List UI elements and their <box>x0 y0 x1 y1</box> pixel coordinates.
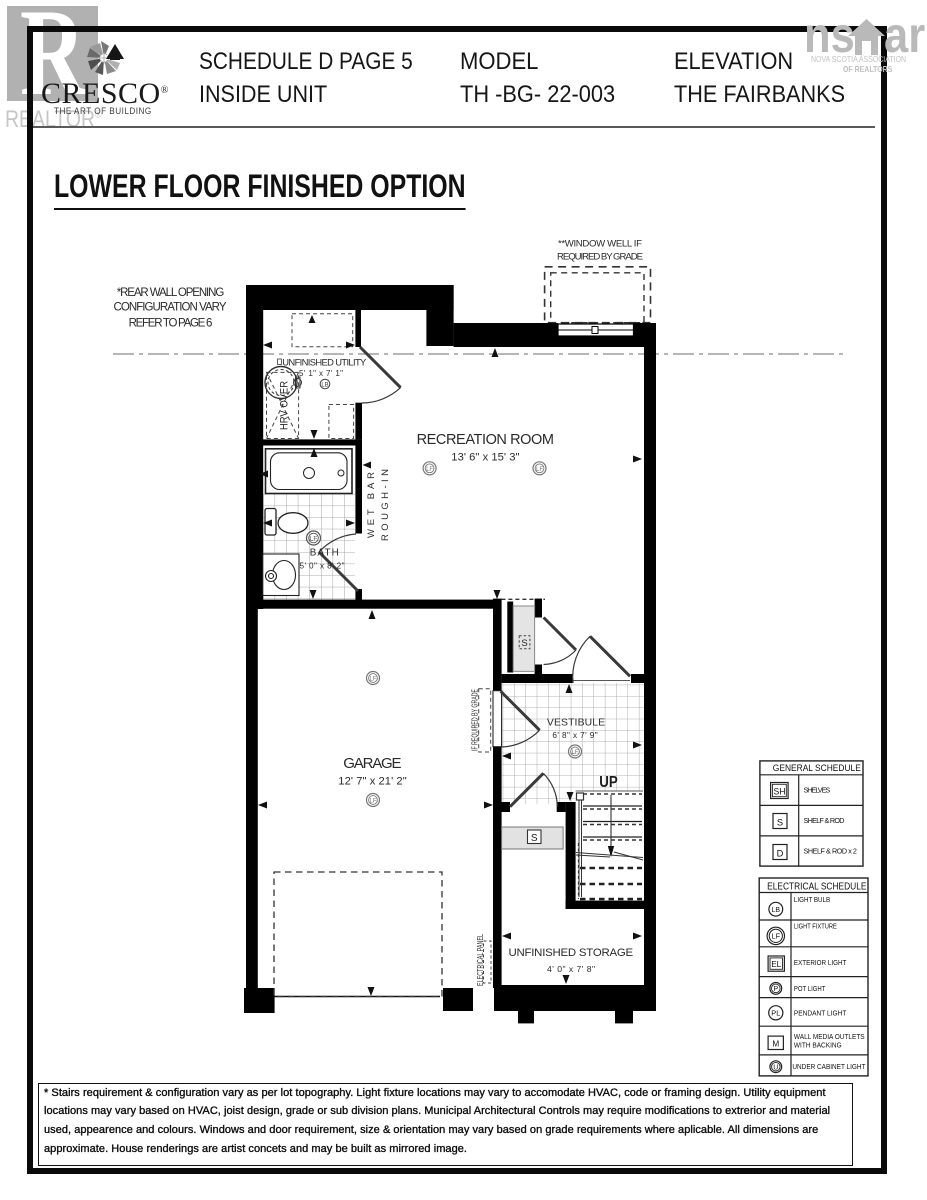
svg-text:SHELF & ROD: SHELF & ROD <box>804 816 845 825</box>
svg-text:UNFINISHED STORAGE: UNFINISHED STORAGE <box>508 947 633 959</box>
svg-text:*REAR WALL OPENING: *REAR WALL OPENING <box>117 287 225 299</box>
svg-text:HRV OVER: HRV OVER <box>279 381 291 430</box>
svg-text:ELECTRICAL SCHEDULE: ELECTRICAL SCHEDULE <box>767 882 866 893</box>
svg-text:WITH BACKING: WITH BACKING <box>794 1041 842 1050</box>
svg-text:LF: LF <box>772 932 781 941</box>
svg-text:S: S <box>521 638 527 649</box>
svg-text:LF: LF <box>369 677 376 683</box>
svg-text:4' 0" x 7' 8": 4' 0" x 7' 8" <box>547 964 595 974</box>
svg-text:LF: LF <box>571 750 578 756</box>
svg-text:POT LIGHT: POT LIGHT <box>794 984 826 993</box>
svg-text:LF: LF <box>426 467 433 473</box>
svg-text:S: S <box>777 818 783 828</box>
svg-text:D: D <box>777 849 784 859</box>
svg-text:EXTERIOR LIGHT: EXTERIOR LIGHT <box>794 958 847 967</box>
svg-text:VESTIBULE: VESTIBULE <box>547 718 605 729</box>
svg-text:P: P <box>773 986 778 993</box>
svg-text:LIGHT FIXTURE: LIGHT FIXTURE <box>794 922 837 931</box>
svg-text:5' 1" x 7' 1": 5' 1" x 7' 1" <box>299 369 343 378</box>
svg-text:UNFINISHED UTILITY: UNFINISHED UTILITY <box>282 357 367 368</box>
svg-text:LB: LB <box>321 383 328 389</box>
svg-text:RECREATION ROOM: RECREATION ROOM <box>417 432 554 448</box>
svg-text:SH: SH <box>774 786 786 796</box>
svg-text:UNDER CABINET LIGHT: UNDER CABINET LIGHT <box>792 1062 866 1071</box>
svg-text:IF REQUIRED BY GRADE: IF REQUIRED BY GRADE <box>470 689 480 751</box>
svg-text:SHELF & ROD x 2: SHELF & ROD x 2 <box>804 847 857 856</box>
svg-text:12' 7" x 21' 2": 12' 7" x 21' 2" <box>338 776 406 788</box>
svg-text:LF: LF <box>369 799 376 805</box>
svg-text:LF: LF <box>310 536 318 543</box>
svg-text:LF: LF <box>536 467 543 473</box>
svg-text:**WINDOW WELL IF: **WINDOW WELL IF <box>558 239 642 250</box>
svg-text:WET BAR: WET BAR <box>366 472 377 538</box>
svg-text:EL: EL <box>771 960 781 969</box>
svg-text:UP: UP <box>599 774 618 791</box>
svg-text:U: U <box>773 1064 778 1071</box>
svg-text:M: M <box>772 1039 779 1048</box>
svg-text:LIGHT BULB: LIGHT BULB <box>794 895 830 904</box>
svg-text:GARAGE: GARAGE <box>343 755 401 772</box>
svg-text:LB: LB <box>772 905 781 914</box>
svg-text:ROUGH-IN: ROUGH-IN <box>380 469 391 541</box>
svg-text:5' 0" x 8' 2": 5' 0" x 8' 2" <box>300 562 345 571</box>
svg-text:CONFIGURATION VARY: CONFIGURATION VARY <box>114 302 227 314</box>
svg-text:REQUIRED BY GRADE: REQUIRED BY GRADE <box>557 252 643 263</box>
svg-text:S: S <box>531 833 538 844</box>
svg-text:6' 8" x 7' 9": 6' 8" x 7' 9" <box>552 731 597 740</box>
svg-text:REFER TO PAGE 6: REFER TO PAGE 6 <box>129 318 213 330</box>
svg-text:BATH: BATH <box>310 548 339 559</box>
svg-text:GENERAL SCHEDULE: GENERAL SCHEDULE <box>773 763 861 774</box>
svg-text:13' 6" x 15' 3": 13' 6" x 15' 3" <box>451 452 519 464</box>
svg-text:PL: PL <box>771 1009 780 1018</box>
svg-text:PENDANT LIGHT: PENDANT LIGHT <box>794 1008 847 1017</box>
svg-text:SHELVES: SHELVES <box>804 786 831 795</box>
